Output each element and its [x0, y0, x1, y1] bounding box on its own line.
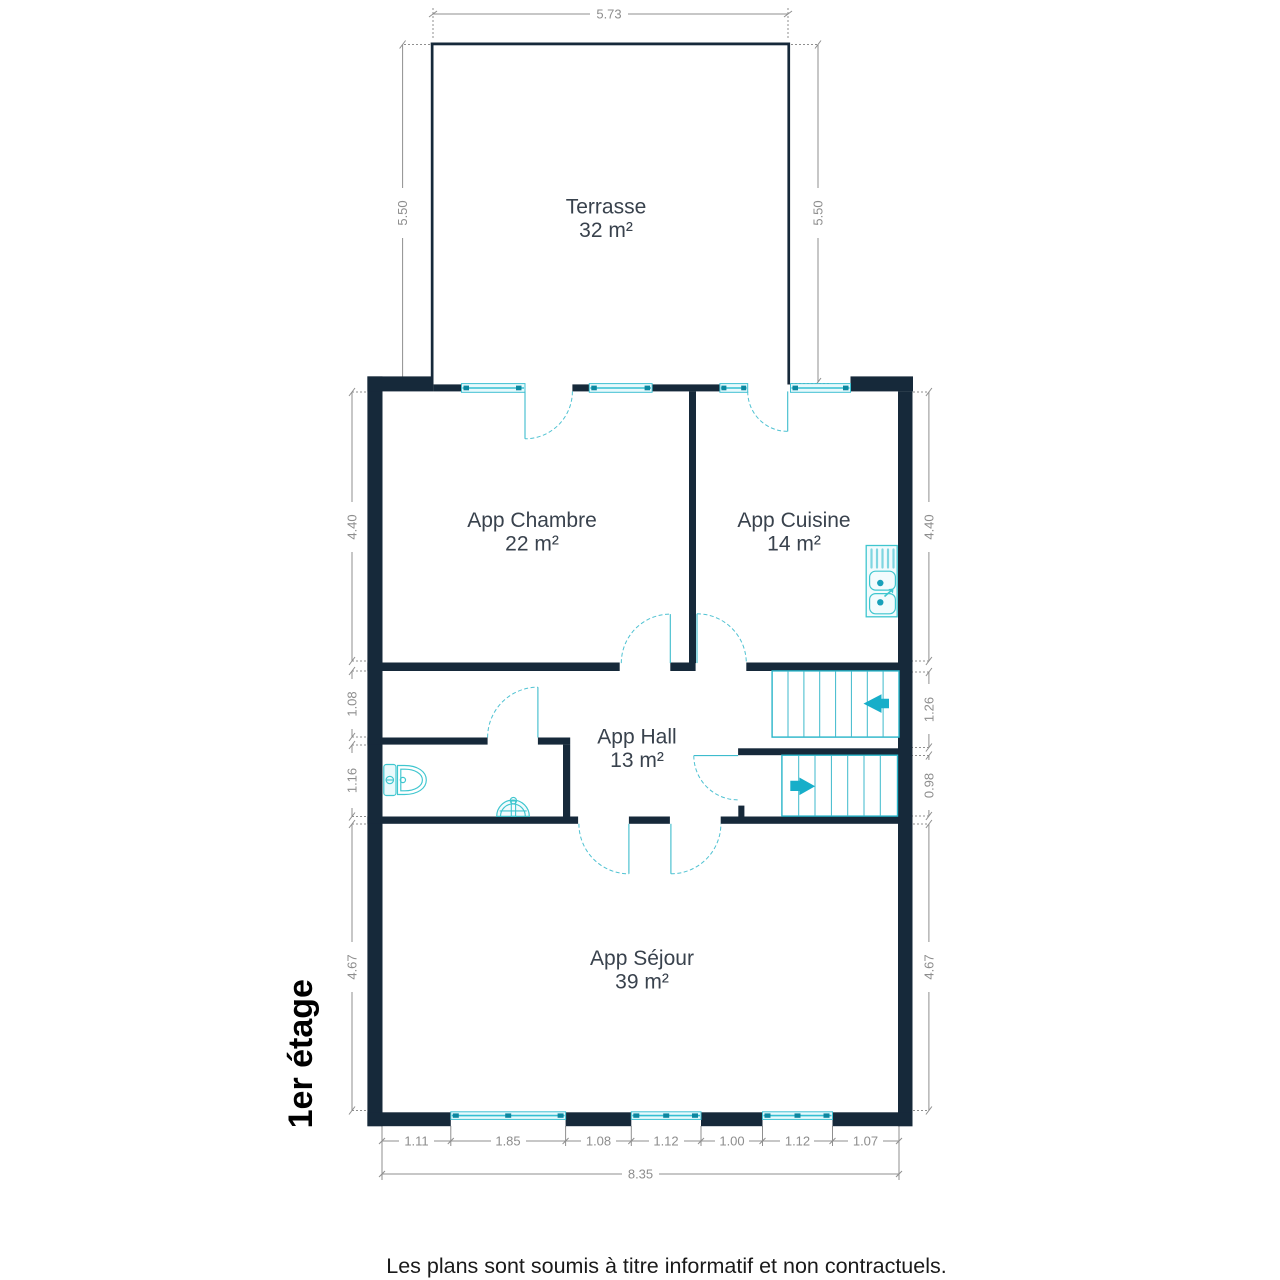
svg-text:8.35: 8.35 [628, 1167, 653, 1182]
svg-text:App Séjour: App Séjour [590, 947, 694, 970]
svg-text:Terrasse: Terrasse [566, 196, 647, 219]
svg-text:1.11: 1.11 [404, 1134, 428, 1149]
svg-text:App Hall: App Hall [597, 726, 676, 749]
svg-text:22 m²: 22 m² [505, 533, 559, 556]
svg-text:13 m²: 13 m² [610, 749, 664, 772]
svg-text:5.50: 5.50 [395, 200, 410, 225]
svg-text:4.40: 4.40 [345, 514, 360, 539]
svg-text:4.67: 4.67 [345, 954, 360, 979]
svg-text:1.16: 1.16 [345, 768, 360, 793]
svg-text:14 m²: 14 m² [767, 533, 821, 556]
svg-text:1er étage: 1er étage [282, 979, 320, 1128]
svg-text:4.67: 4.67 [921, 954, 936, 979]
svg-text:1.08: 1.08 [586, 1134, 611, 1149]
svg-text:39 m²: 39 m² [615, 971, 669, 994]
svg-text:1.08: 1.08 [345, 691, 360, 716]
svg-text:5.50: 5.50 [811, 200, 826, 225]
svg-text:1.00: 1.00 [719, 1134, 744, 1149]
svg-text:App Cuisine: App Cuisine [737, 509, 850, 532]
svg-text:32 m²: 32 m² [579, 219, 633, 242]
svg-text:5.73: 5.73 [596, 7, 621, 22]
svg-text:App Chambre: App Chambre [467, 509, 597, 532]
svg-text:1.85: 1.85 [495, 1134, 520, 1149]
svg-text:Les plans sont soumis à titre: Les plans sont soumis à titre informatif… [386, 1254, 946, 1278]
svg-text:1.12: 1.12 [785, 1134, 810, 1149]
svg-text:1.12: 1.12 [653, 1134, 678, 1149]
svg-text:1.26: 1.26 [921, 697, 936, 722]
svg-text:1.07: 1.07 [853, 1134, 878, 1149]
svg-text:0.98: 0.98 [921, 773, 936, 798]
svg-text:4.40: 4.40 [921, 514, 936, 539]
